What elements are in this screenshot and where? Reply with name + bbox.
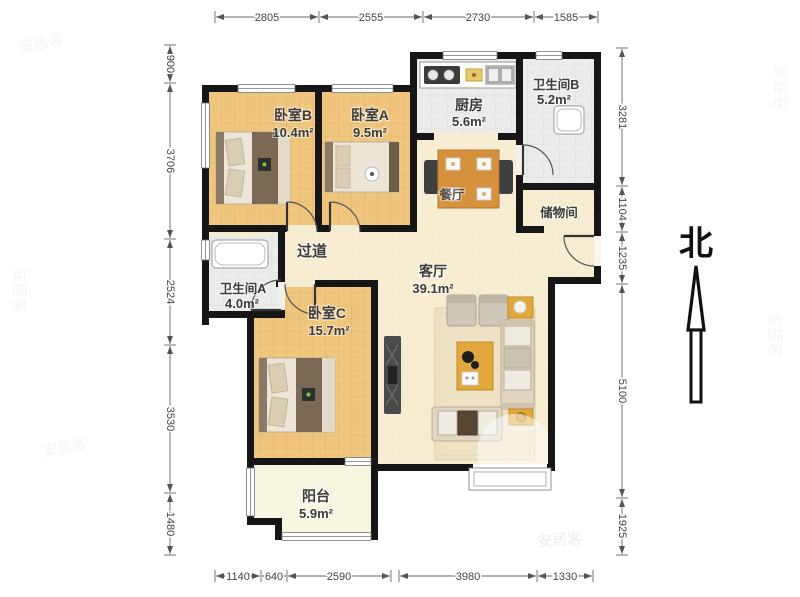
dim-label: 2524 — [164, 280, 176, 304]
bed-b — [216, 132, 290, 204]
window — [536, 52, 562, 60]
room-name-bedroom-b: 卧室B — [274, 107, 312, 123]
bathtub-a — [212, 240, 268, 268]
dim-label: 2555 — [359, 12, 383, 24]
bed-a — [325, 142, 399, 192]
floorplan-screenshot: 安居客 安居客 安居客 安居客 安居客 — [0, 0, 800, 597]
room-area-bathroom-b: 5.2m² — [537, 92, 572, 107]
room-name-living: 客厅 — [418, 263, 447, 279]
dim-label: 3281 — [616, 105, 628, 129]
dim-label: 1585 — [554, 12, 578, 24]
dim-label: 2805 — [255, 12, 279, 24]
room-name-storage: 储物间 — [539, 205, 578, 220]
bed-c — [259, 358, 335, 432]
watermark-text: 安居客 — [10, 267, 27, 312]
bathtub-b — [554, 106, 584, 134]
dim-label: 900 — [164, 55, 176, 73]
kitchen-counter — [420, 62, 516, 88]
room-name-dining: 餐厅 — [438, 187, 465, 202]
room-name-bathroom-a: 卫生间A — [220, 281, 267, 296]
dim-label: 3980 — [456, 571, 480, 583]
tv-console — [384, 336, 401, 414]
dim-label: 2730 — [466, 12, 490, 24]
window — [238, 85, 295, 93]
north-label: 北 — [679, 226, 713, 263]
window — [202, 103, 210, 168]
room-area-bedroom-a: 9.5m² — [353, 125, 388, 140]
room-area-kitchen: 5.6m² — [452, 114, 487, 129]
window — [282, 533, 371, 541]
dim-label: 1925 — [616, 514, 628, 538]
dim-label: 1104 — [616, 197, 628, 221]
dim-label: 5100 — [616, 379, 628, 403]
dim-label: 640 — [265, 571, 283, 583]
watermark-text: 安居客 — [772, 65, 789, 110]
room-name-bedroom-a: 卧室A — [351, 107, 389, 123]
north-arrow-shaft — [691, 330, 701, 402]
dim-label: 3530 — [164, 407, 176, 431]
watermark-text: 安居客 — [766, 312, 783, 357]
room-name-bedroom-c: 卧室C — [308, 305, 346, 321]
window — [202, 240, 210, 260]
dim-label: 1330 — [553, 571, 577, 583]
room-name-hallway: 过道 — [297, 242, 327, 260]
room-name-kitchen: 厨房 — [455, 97, 483, 113]
dim-label: 1480 — [164, 512, 176, 536]
room-area-bathroom-a: 4.0m² — [225, 296, 260, 311]
dim-label: 3706 — [164, 149, 176, 173]
room-name-bathroom-b: 卫生间B — [533, 77, 580, 92]
room-area-balcony: 5.9m² — [299, 506, 334, 521]
room-area-bedroom-b: 10.4m² — [272, 125, 314, 140]
watermark-text: 安居客 — [537, 530, 583, 550]
window — [332, 85, 393, 93]
floorplan-svg: 安居客 安居客 安居客 安居客 安居客 — [0, 0, 800, 597]
room-area-bedroom-c: 15.7m² — [308, 323, 350, 338]
dim-label: 1235 — [616, 246, 628, 270]
bay-window — [469, 464, 551, 490]
room-area-living: 39.1m² — [412, 281, 454, 296]
room-name-balcony: 阳台 — [302, 488, 330, 504]
window — [443, 52, 497, 60]
balcony-sliding-door — [345, 458, 371, 466]
window — [247, 468, 255, 516]
dim-label: 2590 — [327, 571, 351, 583]
dim-label: 1140 — [226, 571, 250, 583]
